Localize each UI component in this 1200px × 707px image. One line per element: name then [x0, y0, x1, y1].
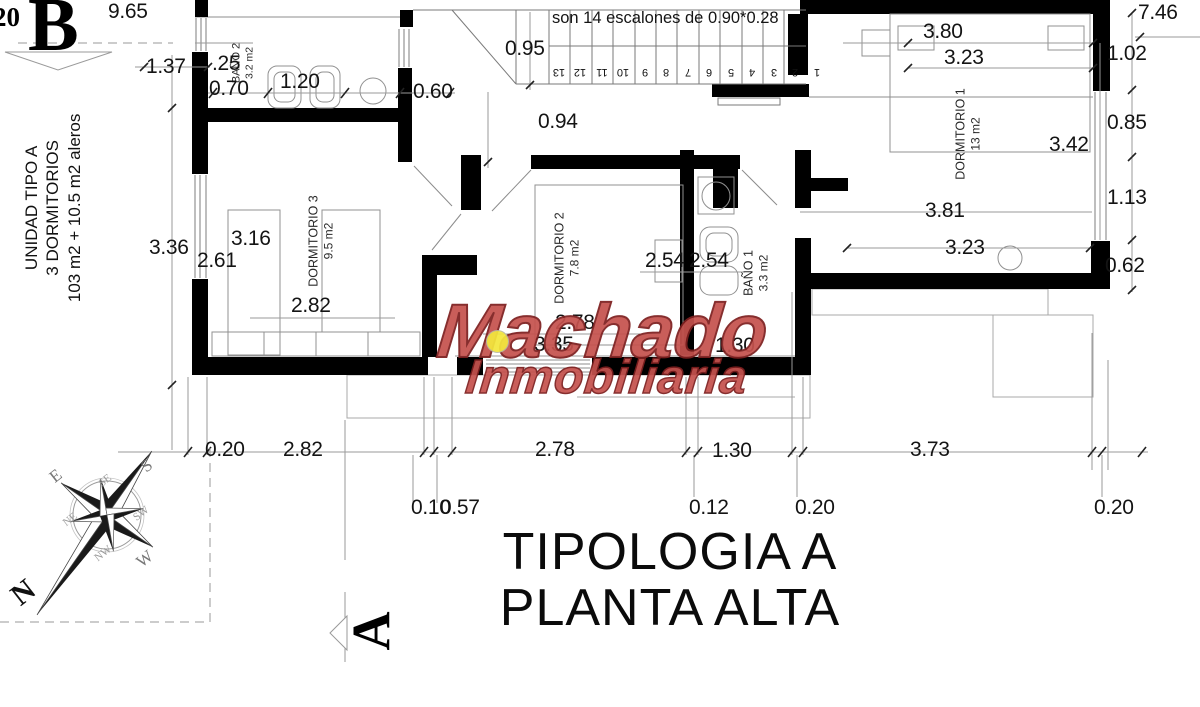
stair-step-number: 9	[637, 66, 653, 78]
dimension-label: 1.37	[146, 55, 186, 79]
compass-w-label: W	[132, 546, 157, 571]
dimension-label: 0.12	[689, 496, 729, 520]
dimension-label: .25	[212, 52, 240, 76]
dimension-label: 0.85	[1107, 111, 1147, 135]
dimension-label: 1.30	[715, 334, 755, 358]
dimension-label: 0.20	[205, 438, 245, 462]
dimension-label: 2.61	[197, 249, 237, 273]
dimension-label: 3.23	[945, 236, 985, 260]
room-label-dormitorio1: DORMITORIO 1 13 m2	[954, 88, 983, 179]
dimension-label: 1.30	[712, 439, 752, 463]
dimension-label: 1.13	[1107, 186, 1147, 210]
dimension-label: 0.20	[795, 496, 835, 520]
dimension-label: 2.82	[291, 294, 331, 318]
dimension-label: 3.23	[944, 46, 984, 70]
closet-cell	[316, 332, 368, 356]
stair-step-number: 6	[701, 66, 717, 78]
section-marker-b: B	[28, 0, 79, 69]
compass-n-label: N	[4, 573, 42, 613]
dimension-label: 9.65	[108, 0, 148, 24]
dimension-label: 0.94	[538, 110, 578, 134]
room-label-dormitorio2: DORMITORIO 2 7.8 m2	[553, 212, 582, 303]
stair-step-number: 4	[744, 66, 760, 78]
dimension-label: 1.20	[280, 70, 320, 94]
dimension-label: 0.62	[1105, 254, 1145, 278]
dimension-label: 0.57	[440, 496, 480, 520]
dimension-label: 3.80	[923, 20, 963, 44]
dimension-label: 2.54	[689, 249, 729, 273]
stair-step-number: 1	[809, 66, 825, 78]
stair-step-number: 12	[572, 66, 588, 78]
title-line-2: PLANTA ALTA	[425, 580, 915, 636]
dimension-label: 3.35	[534, 333, 574, 357]
compass-e-label: E	[46, 465, 66, 486]
section-marker-a: A	[341, 612, 403, 651]
dimension-label: 0.95	[505, 37, 545, 61]
stair-step-number: 5	[723, 66, 739, 78]
dimension-label: 1.02	[1107, 42, 1147, 66]
dimension-label: 2.82	[283, 438, 323, 462]
room-label-bano1: BAÑO 1 3.3 m2	[742, 250, 771, 296]
compass-ne-label: NE	[61, 510, 80, 529]
ceiling-light	[998, 246, 1022, 270]
stair-note: son 14 escalones de 0.90*0.28	[552, 9, 779, 28]
title-line-1: TIPOLOGIA A	[425, 524, 915, 580]
closet-cell	[264, 332, 316, 356]
dimension-label: 3.81	[925, 199, 965, 223]
dimension-label: 3.42	[1049, 133, 1089, 157]
floor-plan-canvas: N S E W NE SE SW NW 9.65 1.37 .25 0.70 1…	[0, 0, 1200, 707]
dimension-label: 3.36	[149, 236, 189, 260]
dimension-label: 0.60	[413, 80, 453, 104]
dimension-label: 3.73	[910, 438, 950, 462]
stair-step-number: 11	[594, 66, 610, 78]
bath2-sink	[360, 78, 386, 104]
closet-cell	[212, 332, 264, 356]
edge-fragment: 20	[0, 2, 20, 33]
stair-step-number: 7	[680, 66, 696, 78]
dimension-label: 2.54	[645, 249, 685, 273]
stair-step-number: 13	[551, 66, 567, 78]
dimension-label: 0.20	[1094, 496, 1134, 520]
bed1	[890, 14, 1090, 152]
compass-rose: N S E W NE SE SW NW	[0, 419, 198, 647]
drawing-title: TIPOLOGIA A PLANTA ALTA	[425, 524, 915, 636]
compass-nw-label: NW	[92, 543, 114, 564]
unit-info: UNIDAD TIPO A 3 DORMITORIOS 103 m2 + 10.…	[21, 83, 85, 333]
compass-sw-label: SW	[131, 503, 152, 523]
stair-step-number: 10	[615, 66, 631, 78]
stair-step-number: 8	[658, 66, 674, 78]
bed1-pillow	[1048, 26, 1084, 50]
room-label-dormitorio3: DORMITORIO 3 9.5 m2	[307, 195, 336, 286]
dimension-label: 2.78	[535, 438, 575, 462]
dimension-label: 2.78	[555, 311, 595, 335]
stair-step-number: 3	[766, 66, 782, 78]
stair-step-number: 2	[787, 66, 803, 78]
dimension-label: 3.16	[231, 227, 271, 251]
dimension-label: 0.70	[209, 77, 249, 101]
dimension-label: 7.46	[1138, 1, 1178, 25]
compass-se-label: SE	[96, 472, 114, 490]
closet-cell	[368, 332, 420, 356]
